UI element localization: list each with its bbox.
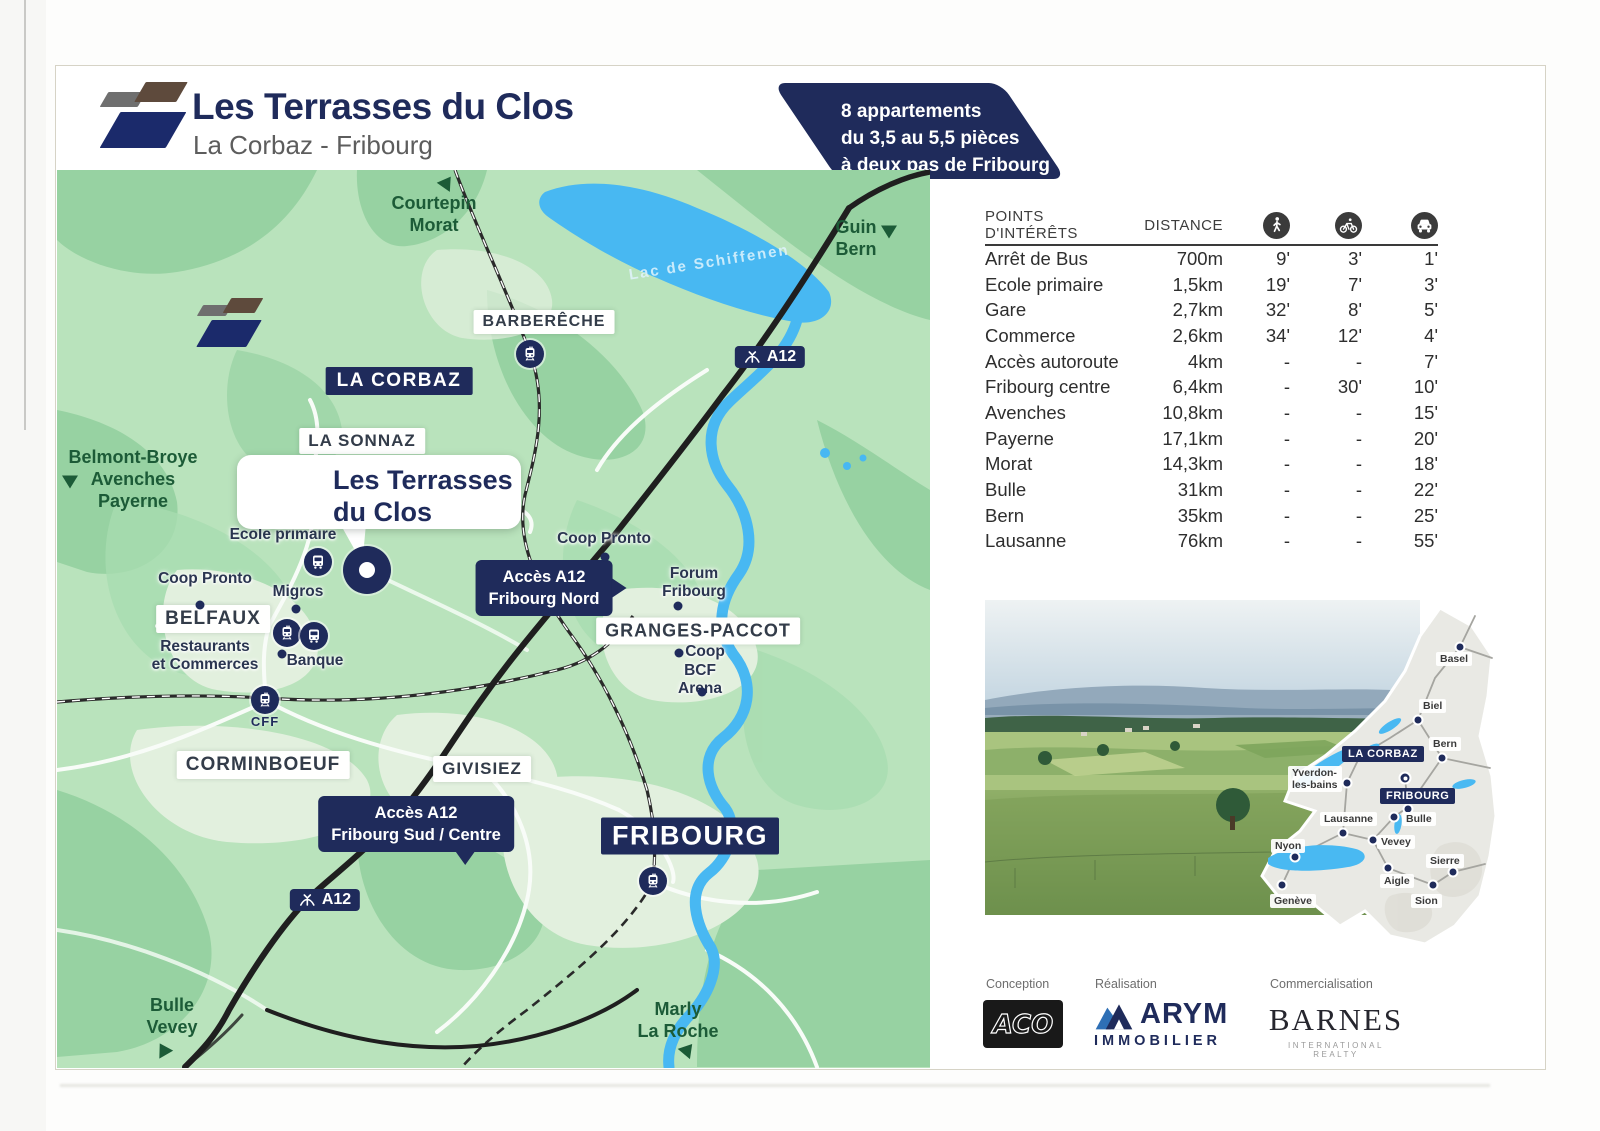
train-station-icon: [273, 619, 301, 647]
table-row: Ecole primaire1,5km19'7'3': [985, 272, 1438, 298]
poi-name: Arrêt de Bus: [985, 248, 1123, 270]
site-callout-title: Les Terrasses du Clos: [333, 464, 513, 528]
table-row: Commerce2,6km34'12'4': [985, 323, 1438, 349]
poi-car-time: 5': [1362, 299, 1438, 321]
inset-city-label-fribourg: FRIBOURG: [1380, 788, 1455, 804]
inset-city-label-basel: Basel: [1436, 652, 1472, 666]
col-distance: DISTANCE: [1123, 217, 1223, 234]
inset-city-label-sierre: Sierre: [1426, 854, 1464, 868]
page-subtitle: La Corbaz - Fribourg: [193, 130, 433, 161]
poi-bike-time: 7': [1290, 274, 1362, 296]
inset-city-dot-bulle: [1389, 812, 1400, 823]
area-map: Lac de Schiffenen CourtepinMoratGuinBern…: [57, 170, 930, 1068]
poi-bike-time: 8': [1290, 299, 1362, 321]
inset-city-dot-la-corbaz: [1399, 772, 1412, 785]
access-callout-1: Accès A12Fribourg Nord: [476, 560, 613, 616]
town-label-corminboeuf: CORMINBOEUF: [177, 751, 350, 779]
a12-badge-1: A12: [735, 346, 805, 368]
train-station-icon: [251, 686, 279, 714]
car-icon: [1411, 212, 1438, 239]
inset-city-dot-biel: [1413, 715, 1424, 726]
poi-distance: 17,1km: [1123, 428, 1223, 450]
direction-label-marly: MarlyLa Roche: [637, 998, 718, 1042]
poi-distance: 2,6km: [1123, 325, 1223, 347]
poi-name: Avenches: [985, 402, 1123, 424]
motorway-icon: [299, 893, 316, 907]
poi-distance: 4km: [1123, 351, 1223, 373]
direction-label-belmont-broye: Belmont-BroyeAvenchesPayerne: [68, 446, 197, 512]
inset-city-label-yverdon-: Yverdon-les-bains: [1288, 766, 1342, 792]
inset-city-dot-sion: [1428, 880, 1439, 891]
inset-city-label-lausanne: Lausanne: [1320, 812, 1377, 826]
poi-walk-time: -: [1223, 428, 1290, 450]
poi-distance: 6,4km: [1123, 376, 1223, 398]
bus-stop-icon: [300, 622, 328, 650]
inset-city-dot-sierre: [1448, 867, 1459, 878]
poi-bike-time: -: [1290, 505, 1362, 527]
page-title: Les Terrasses du Clos: [192, 86, 574, 128]
cff-station-label: CFF: [251, 714, 279, 729]
poi-label-banque: Banque: [287, 652, 344, 670]
table-row: Avenches10,8km--15': [985, 400, 1438, 426]
inset-city-label-sion: Sion: [1411, 894, 1442, 908]
poi-bike-time: -: [1290, 402, 1362, 424]
table-row: Gare2,7km32'8'5': [985, 297, 1438, 323]
poi-walk-time: -: [1223, 505, 1290, 527]
inset-city-label-bern: Bern: [1429, 737, 1461, 751]
poi-name: Lausanne: [985, 530, 1123, 552]
banner-line-1: 8 appartements: [841, 98, 1050, 125]
poi-bike-time: -: [1290, 479, 1362, 501]
table-row: Fribourg centre6,4km-30'10': [985, 374, 1438, 400]
banner-line-2: du 3,5 au 5,5 pièces: [841, 125, 1050, 152]
table-row: Payerne17,1km--20': [985, 426, 1438, 452]
poi-dot: [278, 650, 287, 659]
poi-name: Accès autoroute: [985, 351, 1123, 373]
a12-badge-2: A12: [290, 889, 360, 911]
project-logo: [94, 80, 194, 156]
train-station-icon: [516, 340, 544, 368]
table-row: Morat14,3km--18': [985, 452, 1438, 478]
site-callout-logo: [192, 296, 268, 352]
poi-dot: [698, 688, 707, 697]
inset-city-dot-nyon: [1290, 852, 1301, 863]
arym-sub: IMMOBILIER: [1094, 1033, 1249, 1049]
aco-logo: ACO: [983, 1000, 1063, 1048]
commercialisation-label: Commercialisation: [1270, 977, 1373, 991]
poi-distance: 35km: [1123, 505, 1223, 527]
inset-city-label-aigle: Aigle: [1380, 874, 1414, 888]
site-callout-line1: Les Terrasses: [333, 464, 513, 496]
poi-name: Bulle: [985, 479, 1123, 501]
poi-walk-time: 32': [1223, 299, 1290, 321]
poi-table-header: POINTS D'INTÉRÊTS DISTANCE: [985, 206, 1438, 246]
bus-stop-icon: [304, 548, 332, 576]
scan-edge-line: [24, 0, 26, 430]
walk-icon: [1263, 212, 1290, 239]
poi-dot: [675, 649, 684, 658]
poi-name: Bern: [985, 505, 1123, 527]
table-row: Bern35km--25': [985, 503, 1438, 529]
site-callout-line2: du Clos: [333, 496, 513, 528]
banner-text: 8 appartements du 3,5 au 5,5 pièces à de…: [841, 98, 1050, 179]
poi-walk-time: 34': [1223, 325, 1290, 347]
poi-dot: [196, 601, 205, 610]
poi-walk-time: -: [1223, 453, 1290, 475]
inset-city-label-bulle: Bulle: [1402, 812, 1436, 826]
poi-walk-time: -: [1223, 479, 1290, 501]
poi-bike-time: -: [1290, 428, 1362, 450]
poi-car-time: 10': [1362, 376, 1438, 398]
town-label-la-sonnaz: LA SONNAZ: [299, 428, 425, 454]
poi-dot: [674, 602, 683, 611]
poi-bike-time: 30': [1290, 376, 1362, 398]
poi-car-time: 4': [1362, 325, 1438, 347]
navy-label-fribourg: FRIBOURG: [601, 818, 779, 855]
town-label-givisiez: GIVISIEZ: [433, 756, 531, 782]
poi-walk-time: -: [1223, 530, 1290, 552]
poi-name: Gare: [985, 299, 1123, 321]
poi-name: Ecole primaire: [985, 274, 1123, 296]
direction-label-bulle: BulleVevey: [146, 994, 197, 1038]
table-row: Arrêt de Bus700m9'3'1': [985, 246, 1438, 272]
navy-label-la-corbaz: LA CORBAZ: [326, 367, 473, 395]
poi-distance: 2,7km: [1123, 299, 1223, 321]
arym-logo-mark: [1094, 1001, 1134, 1031]
poi-bike-time: -: [1290, 530, 1362, 552]
inset-city-label-nyon: Nyon: [1271, 839, 1305, 853]
train-station-icon: [639, 867, 667, 895]
poi-car-time: 25': [1362, 505, 1438, 527]
inset-city-dot-basel: [1455, 642, 1466, 653]
town-label-granges-paccot: GRANGES-PACCOT: [596, 618, 800, 645]
site-marker: [343, 546, 391, 594]
poi-distance: 76km: [1123, 530, 1223, 552]
conception-label: Conception: [986, 977, 1049, 991]
inset-city-label-biel: Biel: [1419, 699, 1446, 713]
direction-label-courtepin: CourtepinMorat: [392, 192, 477, 236]
direction-label-guin: GuinBern: [835, 216, 876, 260]
poi-car-time: 7': [1362, 351, 1438, 373]
poi-bike-time: -: [1290, 351, 1362, 373]
inset-city-label-vevey: Vevey: [1377, 835, 1415, 849]
barnes-sub: INTERNATIONAL REALTY: [1266, 1041, 1406, 1059]
poi-bike-time: 3': [1290, 248, 1362, 270]
poi-distance: 1,5km: [1123, 274, 1223, 296]
inset-city-dot-bern: [1437, 753, 1448, 764]
access-callout-2: Accès A12Fribourg Sud / Centre: [318, 796, 514, 852]
poi-distance: 10,8km: [1123, 402, 1223, 424]
poi-car-time: 18': [1362, 453, 1438, 475]
inset-city-label-gen-ve: Genève: [1270, 894, 1316, 908]
table-row: Lausanne76km--55': [985, 529, 1438, 555]
arym-logo: ARYM IMMOBILIER: [1094, 998, 1249, 1049]
barnes-logo: BARNES INTERNATIONAL REALTY: [1266, 1002, 1406, 1059]
poi-car-time: 55': [1362, 530, 1438, 552]
inset-city-dot-yverdon-: [1342, 778, 1353, 789]
poi-table: POINTS D'INTÉRÊTS DISTANCE: [985, 206, 1438, 554]
scan-shadow: [60, 1084, 1490, 1087]
bike-icon: [1335, 212, 1362, 239]
town-label-barber-che: BARBERÊCHE: [474, 310, 615, 334]
inset-city-label-la-corbaz: LA CORBAZ: [1342, 746, 1424, 762]
poi-car-time: 20': [1362, 428, 1438, 450]
poi-label-forum: ForumFribourg: [662, 565, 726, 601]
table-row: Bulle31km--22': [985, 477, 1438, 503]
table-row: Accès autoroute4km--7': [985, 349, 1438, 375]
poi-distance: 31km: [1123, 479, 1223, 501]
poi-dot: [292, 605, 301, 614]
poi-name: Commerce: [985, 325, 1123, 347]
poi-name: Fribourg centre: [985, 376, 1123, 398]
poi-label-restaurants: Restaurantset Commerces: [152, 638, 259, 674]
realisation-label: Réalisation: [1095, 977, 1157, 991]
inset-city-dot-lausanne: [1338, 828, 1349, 839]
poi-walk-time: -: [1223, 376, 1290, 398]
poi-car-time: 15': [1362, 402, 1438, 424]
poi-bike-time: 12': [1290, 325, 1362, 347]
poi-dot: [601, 553, 610, 562]
poi-walk-time: 19': [1223, 274, 1290, 296]
direction-arrow-icon: [881, 226, 897, 239]
poi-label-coop-pronto: Coop Pronto: [158, 570, 252, 588]
poi-car-time: 1': [1362, 248, 1438, 270]
direction-arrow-icon: [62, 476, 78, 489]
poi-name: Morat: [985, 453, 1123, 475]
poi-distance: 700m: [1123, 248, 1223, 270]
aco-logo-text: ACO: [991, 1010, 1054, 1040]
poi-label-migros: Migros: [273, 583, 324, 601]
arym-name: ARYM: [1140, 998, 1228, 1031]
inset-city-dot-aigle: [1383, 863, 1394, 874]
poi-car-time: 22': [1362, 479, 1438, 501]
scanned-brochure-page: Les Terrasses du Clos La Corbaz - Fribou…: [0, 0, 1600, 1131]
poi-distance: 14,3km: [1123, 453, 1223, 475]
inset-city-dot-gen-ve: [1277, 880, 1288, 891]
town-label-belfaux: BELFAUX: [156, 605, 270, 633]
poi-walk-time: 9': [1223, 248, 1290, 270]
poi-bike-time: -: [1290, 453, 1362, 475]
poi-label-coop-pronto: Coop Pronto: [557, 530, 651, 548]
poi-walk-time: -: [1223, 351, 1290, 373]
col-points-interets: POINTS D'INTÉRÊTS: [985, 208, 1123, 242]
motorway-icon: [744, 350, 761, 364]
poi-car-time: 3': [1362, 274, 1438, 296]
barnes-name: BARNES: [1266, 1002, 1406, 1038]
poi-name: Payerne: [985, 428, 1123, 450]
scan-edge-strip: [0, 0, 46, 1131]
poi-label-coop: Coop: [685, 643, 725, 661]
switzerland-inset-map: BaselBielBernLA CORBAZYverdon-les-bainsF…: [1240, 596, 1498, 954]
poi-walk-time: -: [1223, 402, 1290, 424]
